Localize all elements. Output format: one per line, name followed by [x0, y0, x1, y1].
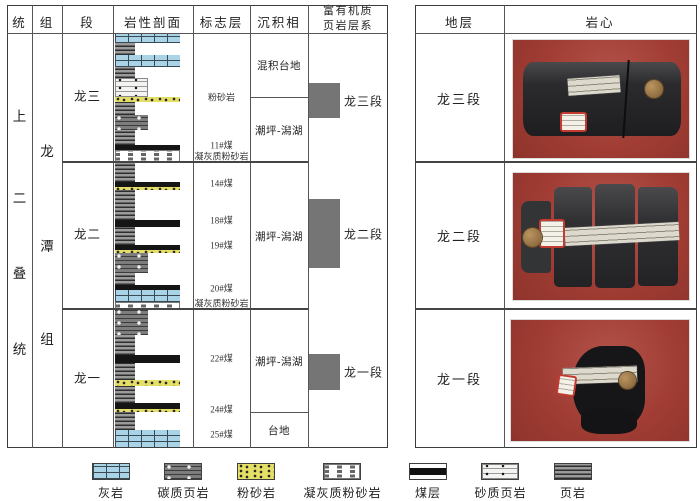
legend-label: 碳质页岩 [157, 484, 209, 501]
legend-swatch-siltstone [237, 463, 275, 480]
legend-swatch-carbshale [164, 463, 202, 480]
grid-line [193, 5, 194, 448]
legend-swatch-limestone [92, 463, 130, 480]
grid-line [32, 5, 33, 448]
legend-item: 煤层 [409, 463, 447, 501]
legend: 灰岩碳质页岩粉砂岩凝灰质粉砂岩煤层砂质页岩页岩 [92, 463, 592, 501]
legend-item: 灰岩 [92, 463, 130, 501]
header-divider [415, 33, 697, 34]
header-divider [7, 33, 388, 34]
legend-swatch-tuffsilt [323, 463, 361, 480]
legend-item: 凝灰质粉砂岩 [303, 463, 381, 501]
legend-label: 砂质页岩 [474, 484, 526, 501]
grid-line [62, 5, 63, 448]
legend-swatch-sandyshale [481, 463, 519, 480]
legend-item: 页岩 [554, 463, 592, 501]
member-boundary-line [62, 161, 308, 163]
legend-swatch-shale [554, 463, 592, 480]
grid-line [308, 5, 309, 448]
right-table-border [415, 5, 697, 448]
legend-label: 页岩 [560, 484, 586, 501]
row-divider [415, 308, 697, 310]
legend-item: 碳质页岩 [157, 463, 209, 501]
legend-label: 灰岩 [98, 484, 124, 501]
legend-label: 凝灰质粉砂岩 [303, 484, 381, 501]
legend-item: 砂质页岩 [474, 463, 526, 501]
left-table-border [7, 5, 388, 448]
grid-line [250, 5, 251, 448]
grid-line [504, 5, 505, 448]
legend-swatch-coal [409, 463, 447, 480]
grid-line [113, 5, 114, 448]
legend-label: 粉砂岩 [237, 484, 276, 501]
legend-label: 煤层 [415, 484, 441, 501]
legend-item: 粉砂岩 [237, 463, 276, 501]
stratigraphic-column-figure: 统 组 段 岩性剖面 标志层 沉积相 富有机质页岩层系 地层 岩心 上二叠统 龙… [0, 0, 700, 501]
member-boundary-line [62, 308, 308, 310]
row-divider [415, 161, 697, 163]
